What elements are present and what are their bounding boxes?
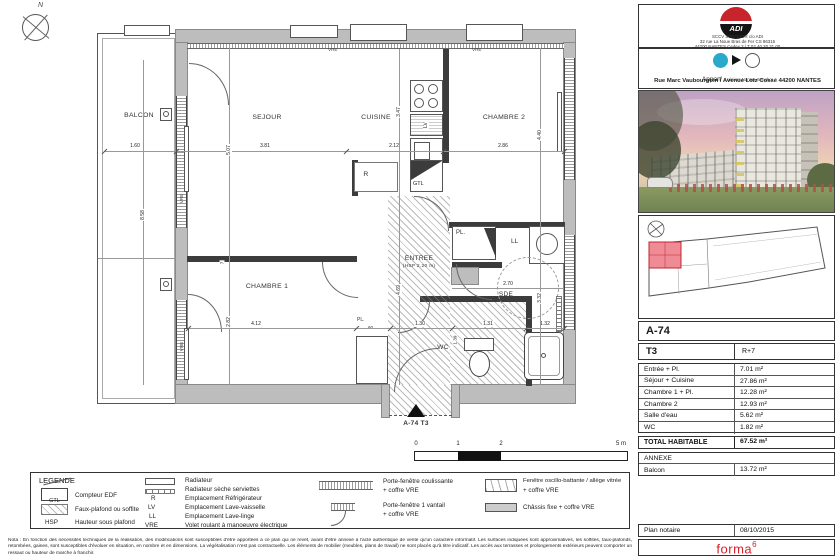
closet-pl-bottom (356, 336, 388, 384)
room-label-sejour: SEJOUR (252, 114, 281, 121)
annexe-title: ANNEXE (639, 455, 672, 462)
area-label: Séjour + Cuisine (639, 377, 734, 384)
annexe-header: ANNEXE (639, 453, 834, 464)
fenetre-oscillo-symbol (485, 479, 517, 492)
area-label: WC (639, 424, 734, 431)
dim-chambre1-height: 2.82 (226, 316, 232, 328)
cooktop-burner (414, 98, 424, 108)
wall-bottom-left (176, 385, 382, 403)
area-row: Chambre 2 12.93 m² (639, 399, 834, 411)
shower-drain (541, 353, 546, 358)
room-label-balcon: BALCON (124, 112, 154, 119)
legend-r-label: Emplacement Réfrigérateur (185, 495, 262, 502)
firm-logo-box: forma6 (638, 539, 835, 556)
towel-radiator (556, 296, 562, 332)
scale-bar (414, 451, 628, 461)
area-value: 12.28 m² (734, 387, 834, 398)
legend-coulissante-l1: Porte-fenêtre coulissante (383, 478, 453, 485)
window-sde (564, 235, 575, 330)
dim-chambre2-height: 4.40 (537, 129, 543, 141)
unit-type: T3 (639, 346, 734, 357)
site-plan-drawing (639, 216, 836, 320)
window-coffre-box (466, 24, 523, 41)
area-label: Salle d'eau (639, 412, 734, 419)
dim-line-v-sejour (229, 48, 230, 385)
balcony-divider (98, 258, 179, 259)
vre-label: VRE (472, 47, 481, 52)
area-value: 1.82 m² (734, 422, 834, 434)
unit-code-box: A-74 (638, 321, 835, 341)
dim-line-h2 (188, 328, 564, 329)
photo-car (647, 177, 673, 188)
annexe-row: Balcon 13.72 m² (639, 464, 834, 476)
project-address: Rue Marc Vaubourgoin / Avenue Lotz Cossé… (641, 78, 834, 84)
dim-wall-offset: 7 (220, 261, 225, 266)
balcony-door-arc-sejour (189, 63, 229, 105)
areas-table: Entrée + Pl. 7.01 m² Séjour + Cuisine 27… (638, 363, 835, 433)
unit-type-box: T3 R+7 (638, 343, 835, 360)
area-value: 27.86 m² (734, 376, 834, 387)
legend-vre-abbr: VRE (145, 522, 158, 529)
area-value: 12.93 m² (734, 399, 834, 410)
north-compass: N (14, 2, 60, 50)
area-label: Entrée + Pl. (639, 366, 734, 373)
scale-tick-1: 1 (455, 441, 460, 447)
dim-cuisine-height: 3.47 (396, 106, 402, 118)
dim-line-v-chambre2 (540, 48, 541, 385)
dim-balcon-width: 1.60 (129, 143, 141, 149)
porte-vantail-symbol (331, 503, 355, 511)
legend-vantail-l1: Porte-fenêtre 1 vantail (383, 502, 445, 509)
legend-compteur-edf: Compteur EDF (75, 492, 117, 499)
area-row: WC 1.82 m² (639, 422, 834, 434)
developer-block: ADI SCCV SENGHOR c/o ADI 32 rue La Noue … (638, 4, 835, 48)
total-label: TOTAL HABITABLE (639, 439, 734, 446)
room-label-wc: WC (437, 344, 448, 351)
window-chambre2 (564, 58, 575, 180)
balcony-light (163, 111, 169, 117)
vre-label: VRE (179, 194, 184, 203)
legend-lv-label: Emplacement Lave-vaisselle (185, 504, 265, 511)
legend-ll-label: Emplacement Lave-linge (185, 513, 254, 520)
building-photo (638, 90, 835, 213)
scale-tick-0: 0 (413, 441, 418, 447)
legend-vre-label: Volet roulant à manoeuvre électrique (185, 522, 288, 529)
dim-line-sde (452, 288, 564, 289)
balcony-light (163, 281, 169, 287)
unit-code: A-74 (646, 325, 670, 337)
floor-plan-sheet: N BALCON VRE VRE VRE VRE LV (0, 0, 840, 560)
annexe-value: 13.72 m² (734, 464, 834, 476)
area-value: 5.62 m² (734, 410, 834, 421)
adi-logo-text: ADI (720, 24, 752, 33)
dim-entree-width: 1.30 (414, 321, 426, 327)
window-coffre-box (290, 25, 338, 38)
radiator-chambre1 (184, 328, 189, 380)
entree-hsp-label: (HSP 2.20 m) (403, 264, 436, 269)
room-label-entree: ENTREE (405, 255, 433, 262)
unit-floor: R+7 (734, 344, 834, 359)
legend-seche-serviettes: Radiateur sèche serviettes (185, 486, 260, 493)
chassis-fixe-symbol (485, 503, 517, 512)
dim-chambre1-width: 4.12 (250, 321, 262, 327)
dim-entree-height: 4.69 (396, 284, 402, 296)
area-row: Chambre 1 + Pl. 12.28 m² (639, 387, 834, 399)
chambre1-door-arc (322, 262, 358, 298)
dim-chambre2-width: 2.86 (497, 143, 509, 149)
vre-label: VRE (328, 47, 337, 52)
total-value: 67.52 m² (734, 437, 834, 448)
wall-kitchen-chambre2 (443, 49, 449, 163)
area-label: Chambre 2 (639, 401, 734, 408)
dim-sejour-height: 5.07 (226, 144, 232, 156)
dim-wc-height: 1.39 (453, 335, 458, 346)
legend-r-abbr: R (151, 495, 156, 502)
legend-vantail-l2: + coffre VRE (383, 511, 419, 518)
scale-bar-segment (458, 451, 501, 461)
annexe-label: Balcon (639, 467, 734, 474)
dim-line-v-cuisine (399, 49, 400, 385)
ll-label: LL (511, 238, 518, 245)
notaire-box: Plan notaire 08/10/2015 (638, 524, 835, 537)
dim-line-h1 (104, 151, 564, 152)
legend-hsp-abbr: HSP (45, 519, 58, 526)
dim-sejour-width: 3.81 (259, 143, 271, 149)
legend-faux-plafond: Faux-plafond ou soffite (75, 506, 139, 513)
radiator-chambre2 (557, 92, 562, 152)
area-row: Salle d'eau 5.62 m² (639, 410, 834, 422)
hatch-swatch (41, 504, 68, 515)
dishwasher-label: LV (423, 121, 429, 129)
firm-logo-sup: 6 (752, 540, 756, 549)
closet-pl-bottom-label: PL. (357, 317, 365, 323)
firm-logo: forma (716, 541, 752, 556)
vestibule-wall-left (382, 385, 389, 417)
dim-sde-width: 2.70 (502, 281, 514, 287)
balcony-inner-line (102, 38, 175, 399)
legend-hsp-label: Hauteur sous plafond (75, 519, 135, 526)
radiator-sejour (184, 126, 189, 192)
cooktop-burner (414, 84, 424, 94)
area-row: Séjour + Cuisine 27.86 m² (639, 376, 834, 388)
gtl-legend-symbol: GTL (41, 488, 68, 501)
area-row: Entrée + Pl. 7.01 m² (639, 364, 834, 376)
towel-radiator-symbol (145, 489, 175, 494)
coffre-vre-strip-top (187, 43, 564, 49)
balcony-door-arc-chambre1 (188, 294, 222, 332)
scale-tick-2: 2 (498, 441, 503, 447)
footer-note: Nota : En fonction des nécessités techni… (8, 538, 632, 558)
scale-tick-5m: 5 m (615, 441, 627, 447)
notaire-date: 08/10/2015 (734, 525, 834, 536)
legend-ll-abbr: LL (149, 513, 156, 520)
legend-oscillo-l2: + coffre VRE (523, 487, 559, 494)
legend-coulissante-l2: + coffre VRE (383, 487, 419, 494)
sde-door-arc (456, 264, 492, 300)
vestibule-wall-right (452, 385, 459, 417)
gtl-label: GTL (413, 181, 424, 187)
area-label: Chambre 1 + Pl. (639, 389, 734, 396)
site-plan-block (638, 215, 835, 319)
brand-logo-outline-circle (745, 53, 760, 68)
toilet-tank (464, 338, 494, 351)
brand-logo-filled-circle (713, 53, 728, 68)
entrance-marker-label: A-74 T3 (403, 420, 429, 427)
dim-sde-height: 3.32 (537, 292, 543, 304)
notaire-label: Plan notaire (639, 527, 734, 534)
fridge-box (354, 162, 398, 192)
window-coffre-box (350, 24, 407, 41)
room-label-chambre1: CHAMBRE 1 (246, 283, 288, 290)
legend-lv-abbr: LV (148, 504, 155, 511)
closet-pl-label: PL. (456, 230, 465, 236)
brand-block: Appart' séniors Nantes-Senghor Rue Marc … (638, 48, 835, 89)
cooktop-burner (428, 84, 438, 94)
annexe-table: ANNEXE Balcon 13.72 m² (638, 452, 835, 476)
entrance-marker-triangle (407, 404, 425, 417)
dim-balcon-height: 8.58 (140, 209, 146, 221)
room-label-chambre2: CHAMBRE 2 (483, 114, 525, 121)
legend-box: LEGENDE GTL Compteur EDF Faux-plafond ou… (30, 472, 630, 529)
porte-coulissante-symbol (319, 481, 373, 490)
dim-line-v-balcon (143, 60, 144, 385)
area-value: 7.01 m² (734, 364, 834, 375)
toilet-bowl (469, 351, 490, 377)
dim-wc-width: 1.31 (482, 321, 494, 327)
fridge-label: R (363, 171, 368, 178)
room-label-cuisine: CUISINE (361, 114, 391, 121)
wall-bottom-right (452, 385, 575, 403)
brand-logo-triangle (732, 55, 741, 65)
window-coffre-box (124, 25, 170, 36)
photo-flowers (669, 184, 835, 192)
radiator-symbol (145, 478, 175, 485)
porte-vantail-arc (331, 511, 346, 526)
legend-chassis-l1: Châssis fixe + coffre VRE (523, 504, 594, 511)
total-box: TOTAL HABITABLE 67.52 m² (638, 436, 835, 449)
north-label: N (38, 2, 43, 9)
legend-radiateur: Radiateur (185, 477, 212, 484)
cooktop-burner (428, 98, 438, 108)
legend-oscillo-l1: Fenêtre oscillo-battante / allège vitrée (523, 478, 621, 484)
